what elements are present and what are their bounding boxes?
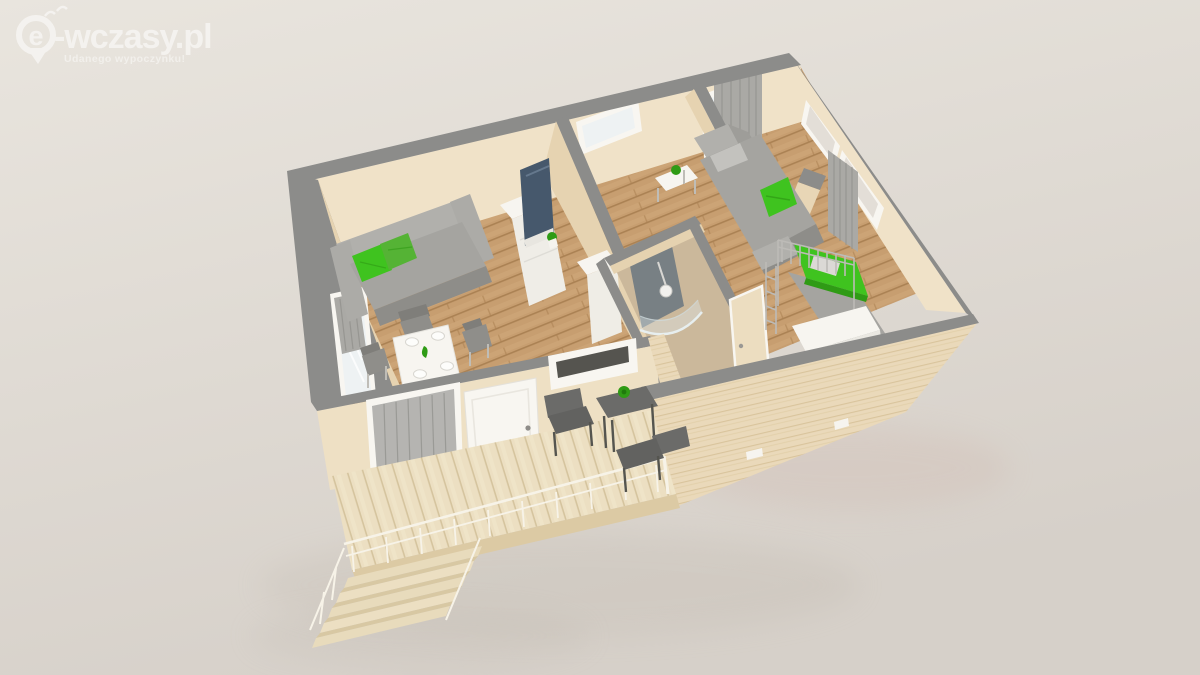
pin-letter: e xyxy=(28,21,43,51)
plate xyxy=(441,362,454,370)
door-handle xyxy=(525,425,530,430)
side-table-plant xyxy=(671,165,681,175)
plate xyxy=(414,370,427,378)
shower-head xyxy=(660,285,672,297)
brand-text: -wczasy.pl xyxy=(54,18,212,56)
plate xyxy=(432,332,445,340)
brand-tagline: Udanego wypoczynku! xyxy=(64,53,185,65)
floorplan-render: e -wczasy.pl Udanego wypoczynku! xyxy=(0,0,1200,675)
plate xyxy=(406,338,419,346)
